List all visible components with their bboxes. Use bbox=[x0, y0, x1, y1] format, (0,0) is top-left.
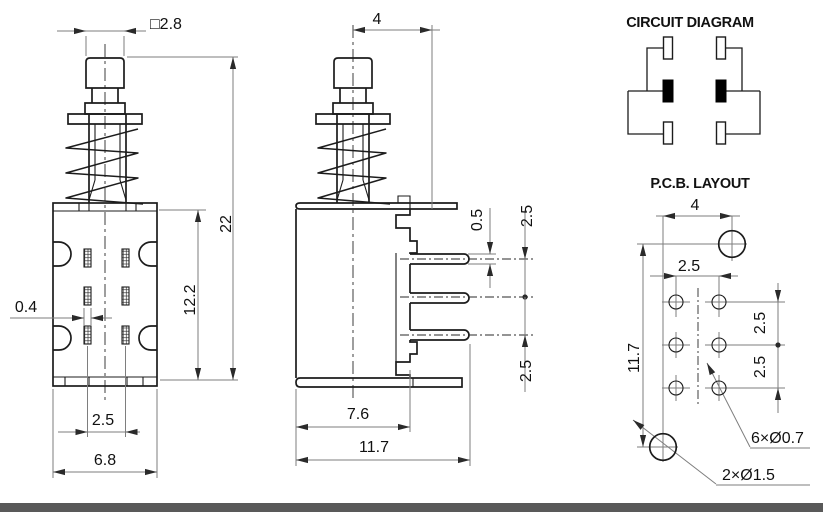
footer-bar bbox=[0, 503, 823, 512]
technical-drawing-page: □2.8 22 12.2 0.4 2.5 6.8 bbox=[0, 0, 823, 520]
dim-terminal-width: 0.4 bbox=[15, 299, 37, 316]
contact-top-right bbox=[717, 37, 726, 59]
switch-technical-drawing: □2.8 22 12.2 0.4 2.5 6.8 bbox=[0, 0, 823, 520]
dim-cap-width: □2.8 bbox=[150, 16, 182, 33]
pcb-layout: P.C.B. LAYOUT 4 2.5 11.7 2.5 2.5 6×Ø0.7 bbox=[626, 176, 810, 485]
circuit-diagram-title: CIRCUIT DIAGRAM bbox=[626, 15, 754, 31]
dim-pin-pitch-lower: 2.5 bbox=[518, 360, 535, 382]
pcb-layout-title: P.C.B. LAYOUT bbox=[650, 176, 750, 192]
contact-bottom-left bbox=[664, 122, 673, 144]
contact-bottom-right bbox=[717, 122, 726, 144]
contact-mid-right bbox=[716, 80, 726, 102]
label-small-holes: 6×Ø0.7 bbox=[751, 430, 804, 447]
dim-overall-depth: 11.7 bbox=[359, 439, 389, 456]
circuit-pole-right bbox=[716, 37, 760, 144]
side-body bbox=[296, 196, 536, 387]
contact-top-left bbox=[664, 37, 673, 59]
dim-hole-pitch-y-lower: 2.5 bbox=[752, 356, 769, 378]
label-large-holes: 2×Ø1.5 bbox=[722, 467, 775, 484]
dim-hole-pitch-y-upper: 2.5 bbox=[752, 312, 769, 334]
side-pins bbox=[400, 254, 536, 340]
dim-body-depth: 7.6 bbox=[347, 406, 369, 423]
dim-body-height: 12.2 bbox=[182, 284, 199, 315]
dim-body-width: 6.8 bbox=[94, 452, 116, 469]
side-spring bbox=[318, 129, 390, 204]
dim-hole-offset-x: 4 bbox=[691, 197, 700, 214]
dim-pin-thickness: 0.5 bbox=[469, 209, 486, 231]
dim-total-height: 22 bbox=[218, 215, 235, 233]
front-view: □2.8 22 12.2 0.4 2.5 6.8 bbox=[10, 16, 238, 478]
front-terminals bbox=[84, 249, 129, 344]
front-spring bbox=[66, 129, 143, 204]
side-view: 4 0.5 2.5 2.5 7.6 11.7 bbox=[296, 11, 536, 466]
dim-overall-height: 11.7 bbox=[626, 343, 643, 373]
contact-mid-left bbox=[663, 80, 673, 102]
side-dimensions: 4 0.5 2.5 2.5 7.6 11.7 bbox=[296, 11, 536, 466]
circuit-pole-left bbox=[628, 37, 673, 144]
dim-hole-pitch-x: 2.5 bbox=[678, 258, 700, 275]
dim-terminal-pitch: 2.5 bbox=[92, 412, 114, 429]
dim-center-to-edge: 4 bbox=[373, 11, 382, 28]
dim-pin-pitch-upper: 2.5 bbox=[519, 205, 536, 227]
circuit-diagram: CIRCUIT DIAGRAM bbox=[626, 15, 760, 144]
